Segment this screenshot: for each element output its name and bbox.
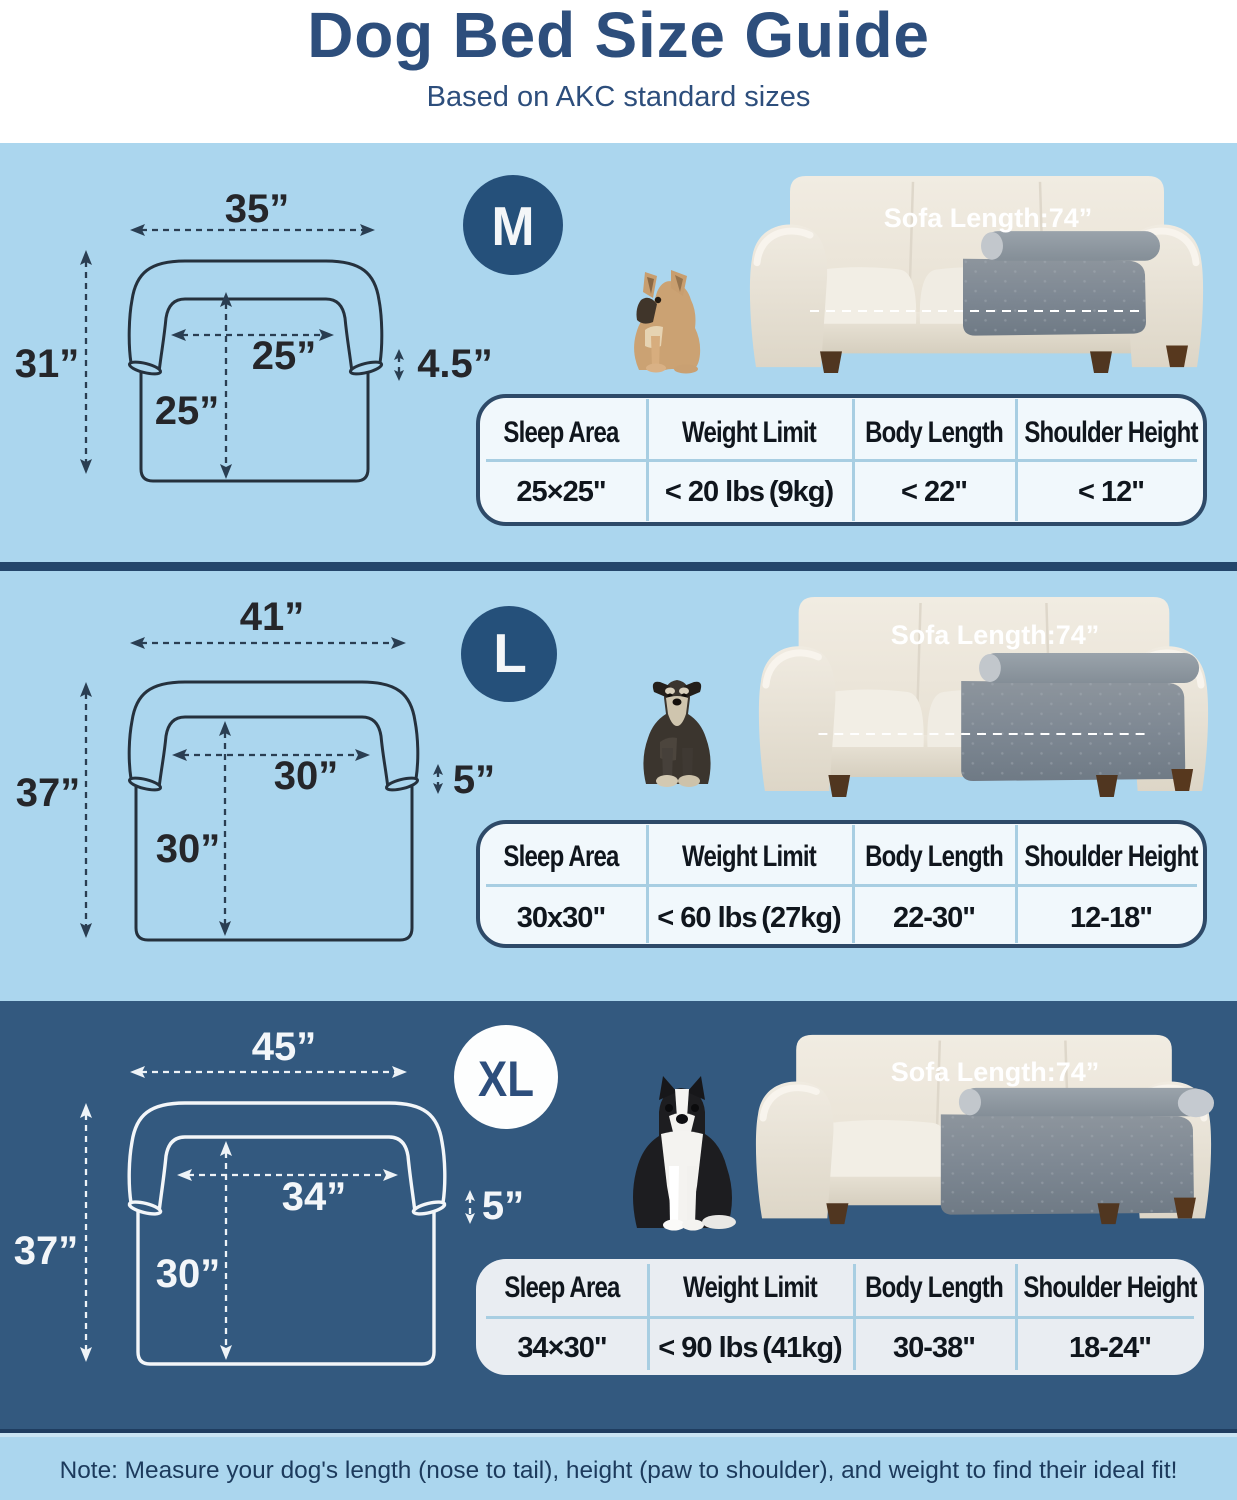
svg-text:Sofa Length:74”: Sofa Length:74” bbox=[891, 1057, 1100, 1087]
svg-text:45”: 45” bbox=[252, 1025, 317, 1069]
svg-text:30”: 30” bbox=[274, 754, 339, 798]
svg-text:5”: 5” bbox=[482, 1184, 524, 1228]
svg-text:25”: 25” bbox=[155, 389, 220, 433]
svg-text:5”: 5” bbox=[453, 758, 495, 802]
svg-text:Sofa Length:74”: Sofa Length:74” bbox=[891, 620, 1100, 650]
svg-text:M: M bbox=[492, 195, 535, 257]
svg-text:XL: XL bbox=[478, 1051, 534, 1107]
svg-text:4.5”: 4.5” bbox=[417, 342, 493, 386]
svg-text:31”: 31” bbox=[15, 342, 80, 386]
svg-text:37”: 37” bbox=[14, 1229, 79, 1273]
svg-text:30”: 30” bbox=[156, 1252, 221, 1296]
svg-text:L: L bbox=[493, 622, 527, 684]
svg-text:Sofa Length:74”: Sofa Length:74” bbox=[884, 203, 1093, 233]
svg-text:34”: 34” bbox=[282, 1175, 347, 1219]
svg-text:25”: 25” bbox=[252, 334, 317, 378]
svg-text:41”: 41” bbox=[240, 595, 305, 639]
svg-text:37”: 37” bbox=[16, 771, 81, 815]
svg-text:30”: 30” bbox=[156, 827, 221, 871]
svg-text:35”: 35” bbox=[225, 187, 290, 231]
